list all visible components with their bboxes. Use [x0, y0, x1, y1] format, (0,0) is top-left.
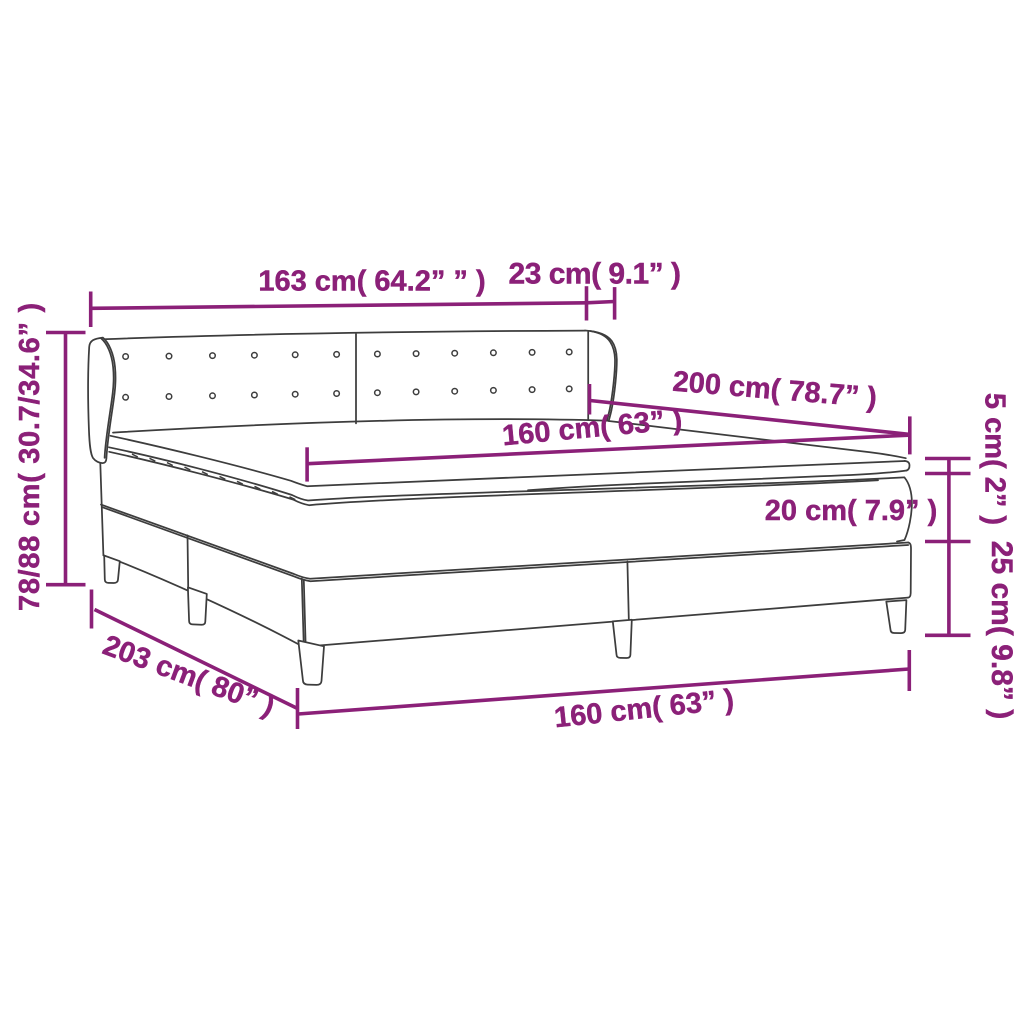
svg-text:25 cm( 9.8” ): 25 cm( 9.8” ) [985, 541, 1018, 719]
svg-text:78/88 cm( 30.7/34.6” ): 78/88 cm( 30.7/34.6” ) [14, 302, 46, 611]
svg-text:5 cm( 2” ): 5 cm( 2” ) [979, 393, 1011, 525]
svg-text:23 cm( 9.1” ): 23 cm( 9.1” ) [509, 258, 681, 291]
svg-text:20 cm( 7.9” ): 20 cm( 7.9” ) [765, 495, 937, 527]
svg-text:163 cm( 64.2” ” ): 163 cm( 64.2” ” ) [258, 265, 485, 297]
